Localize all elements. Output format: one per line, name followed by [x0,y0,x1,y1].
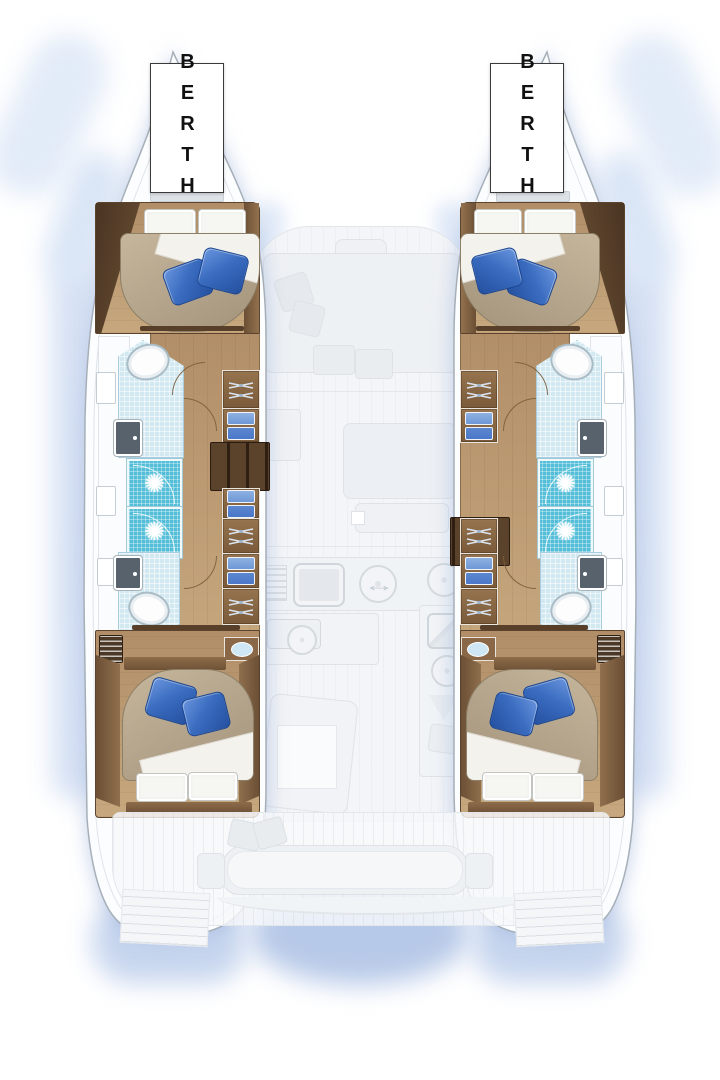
berth-label-port: BERTH [150,63,224,193]
berth-label-starboard: BERTH [490,63,564,193]
wardrobe-shelves [460,408,498,443]
hull-locker [604,486,624,516]
sink-icon [578,420,606,456]
floorplan-canvas: ↔ [0,0,720,1080]
wardrobe-shelves [460,553,498,589]
forward-cabin [460,202,625,334]
wardrobe-hangers [460,370,498,409]
folded-clothes-icon [465,427,493,440]
hanger-icon [464,525,494,547]
folded-clothes-icon [465,412,493,425]
sink-basin-icon [468,642,490,657]
folded-clothes-icon [465,557,493,570]
hanger-icon [464,596,494,618]
wardrobe-hangers [460,518,498,554]
bench-armrest [197,853,225,889]
bench-armrest [465,853,493,889]
berth-label-text: BERTH [176,51,199,206]
cockpit-bench [221,845,469,895]
bench-cushion [227,851,463,889]
shower-stall: ✺ [538,459,593,510]
sink-icon [578,556,606,590]
hanger-icon [464,379,494,401]
forward-bathroom [536,336,608,458]
swim-platform-starboard [514,889,605,948]
bed-pillow [482,772,532,801]
aft-cabin [460,630,625,818]
aft-crossbeam [217,897,529,915]
swim-platform-port [120,889,211,948]
berth-label-text: BERTH [516,51,539,206]
folded-clothes-icon [465,572,493,585]
bed-pillow [532,773,584,802]
door-sill [476,326,580,331]
wardrobe-hangers [460,588,498,625]
cabin-trim [600,655,624,807]
shower-stall: ✺ [538,507,593,558]
cockpit-deck [112,812,610,926]
